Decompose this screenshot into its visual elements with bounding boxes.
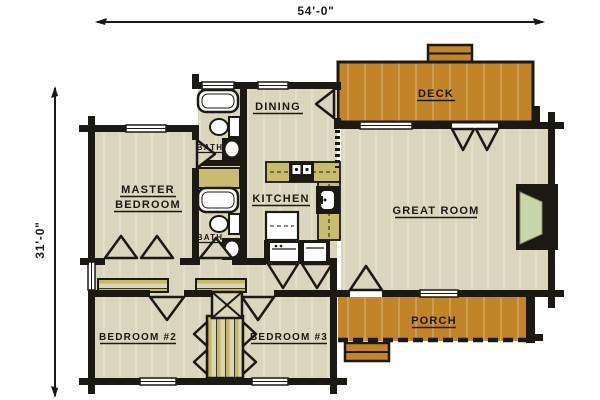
log-end [88, 116, 95, 126]
floor-plan-drawing: 54'-0" 31'-0" [0, 0, 600, 400]
kitchen-sink [316, 186, 340, 214]
arrow-up-icon [51, 86, 58, 98]
dimension-width-label: 54'-0" [297, 4, 334, 18]
label-master-line2: BEDROOM [115, 199, 181, 211]
range [289, 161, 314, 182]
log-end [555, 290, 564, 297]
dryer [304, 243, 326, 261]
wall-hall-bottom-b [184, 290, 212, 297]
label-porch: PORCH [411, 315, 457, 327]
log-end [88, 385, 95, 394]
window [202, 82, 234, 89]
wall-masterbath-a [192, 125, 199, 140]
wall-dining-top-b [288, 82, 340, 89]
wall-greatroom-top-c [498, 122, 555, 129]
label-bedroom2: BEDROOM #2 [99, 332, 177, 343]
log-end [548, 112, 555, 123]
window [140, 378, 176, 385]
label-bath-lower: BATH [197, 233, 223, 242]
label-dining: DINING [255, 101, 301, 113]
window [420, 290, 458, 297]
wall-bedroom3-east [330, 290, 337, 385]
label-great-room: GREAT ROOM [393, 205, 480, 217]
wall-hall-top-a [95, 258, 105, 265]
toilet [210, 214, 240, 234]
bedroom-closets [207, 316, 243, 378]
log-end [555, 122, 564, 129]
log-end [548, 297, 555, 308]
log-end [192, 74, 199, 83]
wall-south-b [176, 378, 252, 385]
vanity-sink [222, 138, 242, 160]
window [88, 262, 95, 290]
label-deck: DECK [418, 88, 454, 100]
log-end [79, 125, 89, 132]
wall-bath-top-a [192, 82, 202, 89]
wall-masterbath-b [192, 168, 199, 265]
window [126, 125, 166, 132]
fireplace [516, 184, 558, 250]
log-end [533, 334, 543, 341]
log-end [337, 378, 347, 385]
toilet [210, 117, 240, 137]
floor-plan-canvas: 54'-0" 31'-0" [0, 0, 600, 400]
linen-closet [197, 168, 240, 188]
wall-hall-bottom-a [95, 290, 150, 297]
wall-greatroom-bottom-c [458, 290, 555, 297]
label-bedroom3: BEDROOM #3 [250, 332, 328, 343]
dimension-left: 31'-0" [33, 86, 58, 398]
log-end [533, 106, 540, 123]
label-kitchen: KITCHEN [252, 193, 309, 205]
deck [338, 45, 533, 122]
bathtub [198, 90, 238, 112]
wall-hall-bottom-c [274, 290, 330, 297]
arrow-down-icon [51, 386, 58, 398]
wall-kitchen-east-a [334, 82, 341, 90]
window [360, 122, 412, 129]
dimension-height-label: 31'-0" [33, 221, 47, 258]
log-end [79, 378, 89, 385]
wall-greatroom-bottom-b [382, 290, 420, 297]
label-master-line1: MASTER [121, 184, 175, 196]
wall-west-upper [88, 125, 95, 262]
window [252, 378, 288, 385]
wall-greatroom-top-b [412, 122, 452, 129]
wall-west-lower [88, 290, 95, 385]
wall-south-c [288, 378, 337, 385]
wall-dining-top-a [240, 82, 258, 89]
label-bath-upper: BATH [197, 143, 223, 152]
log-end [80, 258, 89, 265]
wall-hall-top-b [180, 258, 200, 265]
wall-bath-east [240, 89, 247, 258]
window [258, 82, 288, 89]
arrow-right-icon [533, 18, 545, 25]
refrigerator [266, 212, 298, 240]
dimension-top: 54'-0" [95, 4, 545, 25]
wall-south-a [88, 378, 140, 385]
wall-master-top-a [88, 125, 126, 132]
wall-greatroom-top-a [334, 122, 360, 129]
porch [338, 297, 543, 361]
washer [270, 243, 298, 261]
log-end [330, 385, 337, 394]
arrow-left-icon [95, 18, 107, 25]
laundry-counter [264, 240, 330, 264]
chimney-chase [212, 292, 242, 318]
